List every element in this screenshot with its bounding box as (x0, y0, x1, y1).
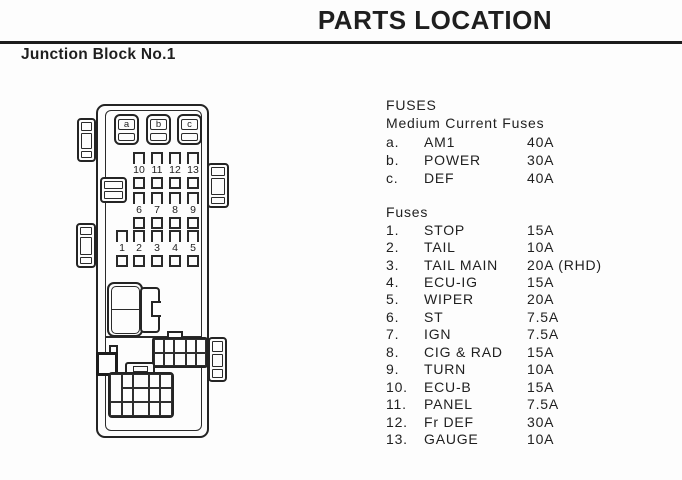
header-rule (0, 41, 682, 44)
fuse-position-5: 5 (185, 230, 201, 267)
pin-cavity (149, 388, 161, 402)
fuse-rating: 7.5A (527, 326, 636, 342)
fuses-subheading: Fuses (386, 204, 428, 220)
pin-cavity (133, 374, 148, 388)
fuse-position-4: 4 (167, 230, 183, 267)
fuse-name: TURN (424, 361, 527, 377)
fuse-position-9: 9 (185, 192, 201, 229)
fuse-rating: 7.5A (527, 309, 636, 325)
fuse-id: b. (386, 152, 424, 168)
fuse-rating: 10A (527, 239, 636, 255)
fuse-clip (151, 230, 163, 242)
fuse-number: 11 (149, 165, 165, 176)
fuse-number: 2 (131, 243, 147, 254)
fuse-clip (187, 255, 199, 267)
fuse-name: DEF (424, 170, 527, 186)
medium-fuse-b: b (146, 114, 171, 145)
fuse-rating: 7.5A (527, 396, 636, 412)
fuse-position-12: 12 (167, 152, 183, 189)
fuse-number: 10 (131, 165, 147, 176)
fuse-name: WIPER (424, 291, 527, 307)
table-row: 9. TURN 10A (386, 361, 636, 378)
lock-tab-slot (133, 366, 148, 372)
fuse-number: 7 (149, 205, 165, 216)
pin-cavity (164, 353, 174, 367)
connector-pin (211, 197, 225, 204)
pin-cavity (122, 388, 134, 402)
fuse-clip (169, 255, 181, 267)
table-row: b. POWER 30A (386, 151, 636, 169)
pin-cavity (196, 339, 206, 353)
fuses-heading: FUSES (386, 97, 437, 113)
table-row: 10. ECU-B 15A (386, 378, 636, 395)
medium-fuse-c: c (177, 114, 202, 145)
pin-cavity (174, 339, 186, 353)
connector-pin (81, 151, 92, 158)
fuse-name: TAIL MAIN (424, 257, 527, 273)
table-row: 13. GAUGE 10A (386, 430, 636, 447)
fuse-clip (151, 152, 163, 164)
table-row: 4. ECU-IG 15A (386, 273, 636, 290)
pin-cavity (160, 402, 172, 416)
table-row: 2. TAIL 10A (386, 238, 636, 255)
fuse-clip (187, 230, 199, 242)
medium-fuse-table: a. AM1 40A b. POWER 30A c. DEF 40A (386, 133, 636, 187)
fuse-name: AM1 (424, 134, 527, 150)
connector-pin (104, 181, 123, 189)
medium-fuse-a: a (114, 114, 139, 145)
fuse-rating: 10A (527, 431, 636, 447)
fuse-clip (133, 177, 145, 189)
connector-pin (80, 237, 92, 255)
fuse-clip (151, 255, 163, 267)
fuse-rating: 20A (RHD) (527, 257, 636, 273)
table-row: 3. TAIL MAIN 20A (RHD) (386, 256, 636, 273)
fuse-clip (169, 152, 181, 164)
fuse-id: 13. (386, 431, 424, 447)
fuse-position-8: 8 (167, 192, 183, 229)
table-row: 7. IGN 7.5A (386, 326, 636, 343)
fuse-id: 9. (386, 361, 424, 377)
fuse-rating: 20A (527, 291, 636, 307)
fuse-position-2: 2 (131, 230, 147, 267)
table-row: 11. PANEL 7.5A (386, 395, 636, 412)
fuse-clip (116, 255, 128, 267)
fuse-id: 7. (386, 326, 424, 342)
fuse-clip (187, 217, 199, 229)
fuse-id: 5. (386, 291, 424, 307)
connector-pin (212, 354, 223, 367)
fuse-position-1: 1 (114, 230, 130, 267)
pin-cavity (186, 339, 196, 353)
multipin-connector-upper (152, 337, 208, 368)
fuse-position-3: 3 (149, 230, 165, 267)
fuse-clip (116, 230, 128, 242)
pin-cavity (110, 374, 122, 402)
pin-cavity (174, 353, 186, 367)
medium-fuse-label: a (118, 119, 135, 131)
fuse-id: 2. (386, 239, 424, 255)
fuse-name: POWER (424, 152, 527, 168)
table-row: a. AM1 40A (386, 133, 636, 151)
fuse-clip (133, 230, 145, 242)
medium-fuse-body (181, 133, 198, 142)
fuse-id: 11. (386, 396, 424, 412)
fuse-rating: 30A (527, 414, 636, 430)
medium-current-fuses-subheading: Medium Current Fuses (386, 115, 544, 131)
medium-fuse-body (118, 133, 135, 142)
fuse-rating: 10A (527, 361, 636, 377)
fuse-number: 1 (114, 243, 130, 254)
fuse-number: 8 (167, 205, 183, 216)
pin-cavity (160, 374, 172, 388)
fuse-clip (169, 192, 181, 204)
fuse-rating: 30A (527, 152, 636, 168)
pin-cavity (133, 402, 148, 416)
fuse-rating: 40A (527, 134, 636, 150)
fuse-clip (133, 255, 145, 267)
fuse-clip (169, 230, 181, 242)
fuse-clip (187, 152, 199, 164)
fuse-clip (151, 177, 163, 189)
table-row: c. DEF 40A (386, 169, 636, 187)
pin-cavity (160, 388, 172, 402)
fuse-number: 4 (167, 243, 183, 254)
fuse-clip (151, 217, 163, 229)
pin-cavity (122, 402, 134, 416)
fuse-name: ECU-IG (424, 274, 527, 290)
fuse-clip (169, 177, 181, 189)
fuse-name: ST (424, 309, 527, 325)
pin-cavity (149, 374, 161, 388)
right-connector-top (207, 163, 229, 208)
fuse-clip (151, 192, 163, 204)
fuse-name: Fr DEF (424, 414, 527, 430)
fuse-table: 1. STOP 15A 2. TAIL 10A 3. TAIL MAIN 20A… (386, 221, 636, 448)
fuse-id: 8. (386, 344, 424, 360)
pin-cavity (154, 339, 164, 353)
fuse-position-7: 7 (149, 192, 165, 229)
medium-fuse-body (150, 133, 167, 142)
fuse-position-11: 11 (149, 152, 165, 189)
manual-page: PARTS LOCATION Junction Block No.1 a b c… (0, 0, 682, 480)
left-connector-bottom (76, 223, 96, 268)
fuse-clip (133, 217, 145, 229)
fuse-id: 10. (386, 379, 424, 395)
table-row: 6. ST 7.5A (386, 308, 636, 325)
fuse-id: 1. (386, 222, 424, 238)
table-row: 1. STOP 15A (386, 221, 636, 238)
fuse-name: CIG & RAD (424, 344, 527, 360)
fuse-id: 3. (386, 257, 424, 273)
connector-pin (104, 191, 123, 199)
fuse-number: 6 (131, 205, 147, 216)
section-title: Junction Block No.1 (21, 46, 176, 64)
left-connector-top (77, 118, 96, 162)
connector-pin (80, 227, 92, 235)
relay-connector-notch (151, 301, 161, 317)
connector-pin (81, 133, 92, 149)
fuse-name: IGN (424, 326, 527, 342)
fuse-name: STOP (424, 222, 527, 238)
connector-pin (212, 341, 223, 352)
right-connector-bottom (208, 337, 227, 382)
pin-cavity (133, 388, 148, 402)
multipin-connector-lower (108, 372, 174, 418)
fuse-rating: 15A (527, 222, 636, 238)
fuse-name: TAIL (424, 239, 527, 255)
fuse-name: GAUGE (424, 431, 527, 447)
table-row: 12. Fr DEF 30A (386, 413, 636, 430)
pin-cavity (149, 402, 161, 416)
fuse-position-13: 13 (185, 152, 201, 189)
fuse-rating: 15A (527, 379, 636, 395)
table-row: 5. WIPER 20A (386, 291, 636, 308)
fuse-number: 5 (185, 243, 201, 254)
fuse-rating: 15A (527, 274, 636, 290)
medium-fuse-label: c (181, 119, 198, 131)
fuse-clip (169, 217, 181, 229)
table-row: 8. CIG & RAD 15A (386, 343, 636, 360)
fuse-number: 12 (167, 165, 183, 176)
fuse-id: 6. (386, 309, 424, 325)
fuse-id: 4. (386, 274, 424, 290)
connector-pin (81, 122, 92, 131)
fuse-id: 12. (386, 414, 424, 430)
fuse-name: PANEL (424, 396, 527, 412)
fuse-rating: 40A (527, 170, 636, 186)
pin-cavity (122, 374, 134, 388)
connector-pin (211, 178, 225, 195)
left-connector-middle (100, 177, 127, 203)
medium-fuse-label: b (150, 119, 167, 131)
fuse-clip (133, 192, 145, 204)
fuse-number: 13 (185, 165, 201, 176)
relay-connector-line (111, 309, 139, 310)
pin-cavity (196, 353, 206, 367)
fuse-number: 9 (185, 205, 201, 216)
fuse-clip (187, 192, 199, 204)
pin-cavity (164, 339, 174, 353)
fuse-id: c. (386, 170, 424, 186)
fuse-position-10: 10 (131, 152, 147, 189)
pin-cavity (110, 402, 122, 416)
fuse-number: 3 (149, 243, 165, 254)
connector-pin (80, 257, 92, 264)
connector-pin (211, 167, 225, 176)
fuse-rating: 15A (527, 344, 636, 360)
pin-cavity (154, 353, 164, 367)
fuse-id: a. (386, 134, 424, 150)
fuse-position-6: 6 (131, 192, 147, 229)
fuse-clip (187, 177, 199, 189)
page-title: PARTS LOCATION (318, 5, 552, 36)
fuse-clip (133, 152, 145, 164)
pin-cavity (186, 353, 196, 367)
connector-pin (212, 369, 223, 378)
fuse-name: ECU-B (424, 379, 527, 395)
